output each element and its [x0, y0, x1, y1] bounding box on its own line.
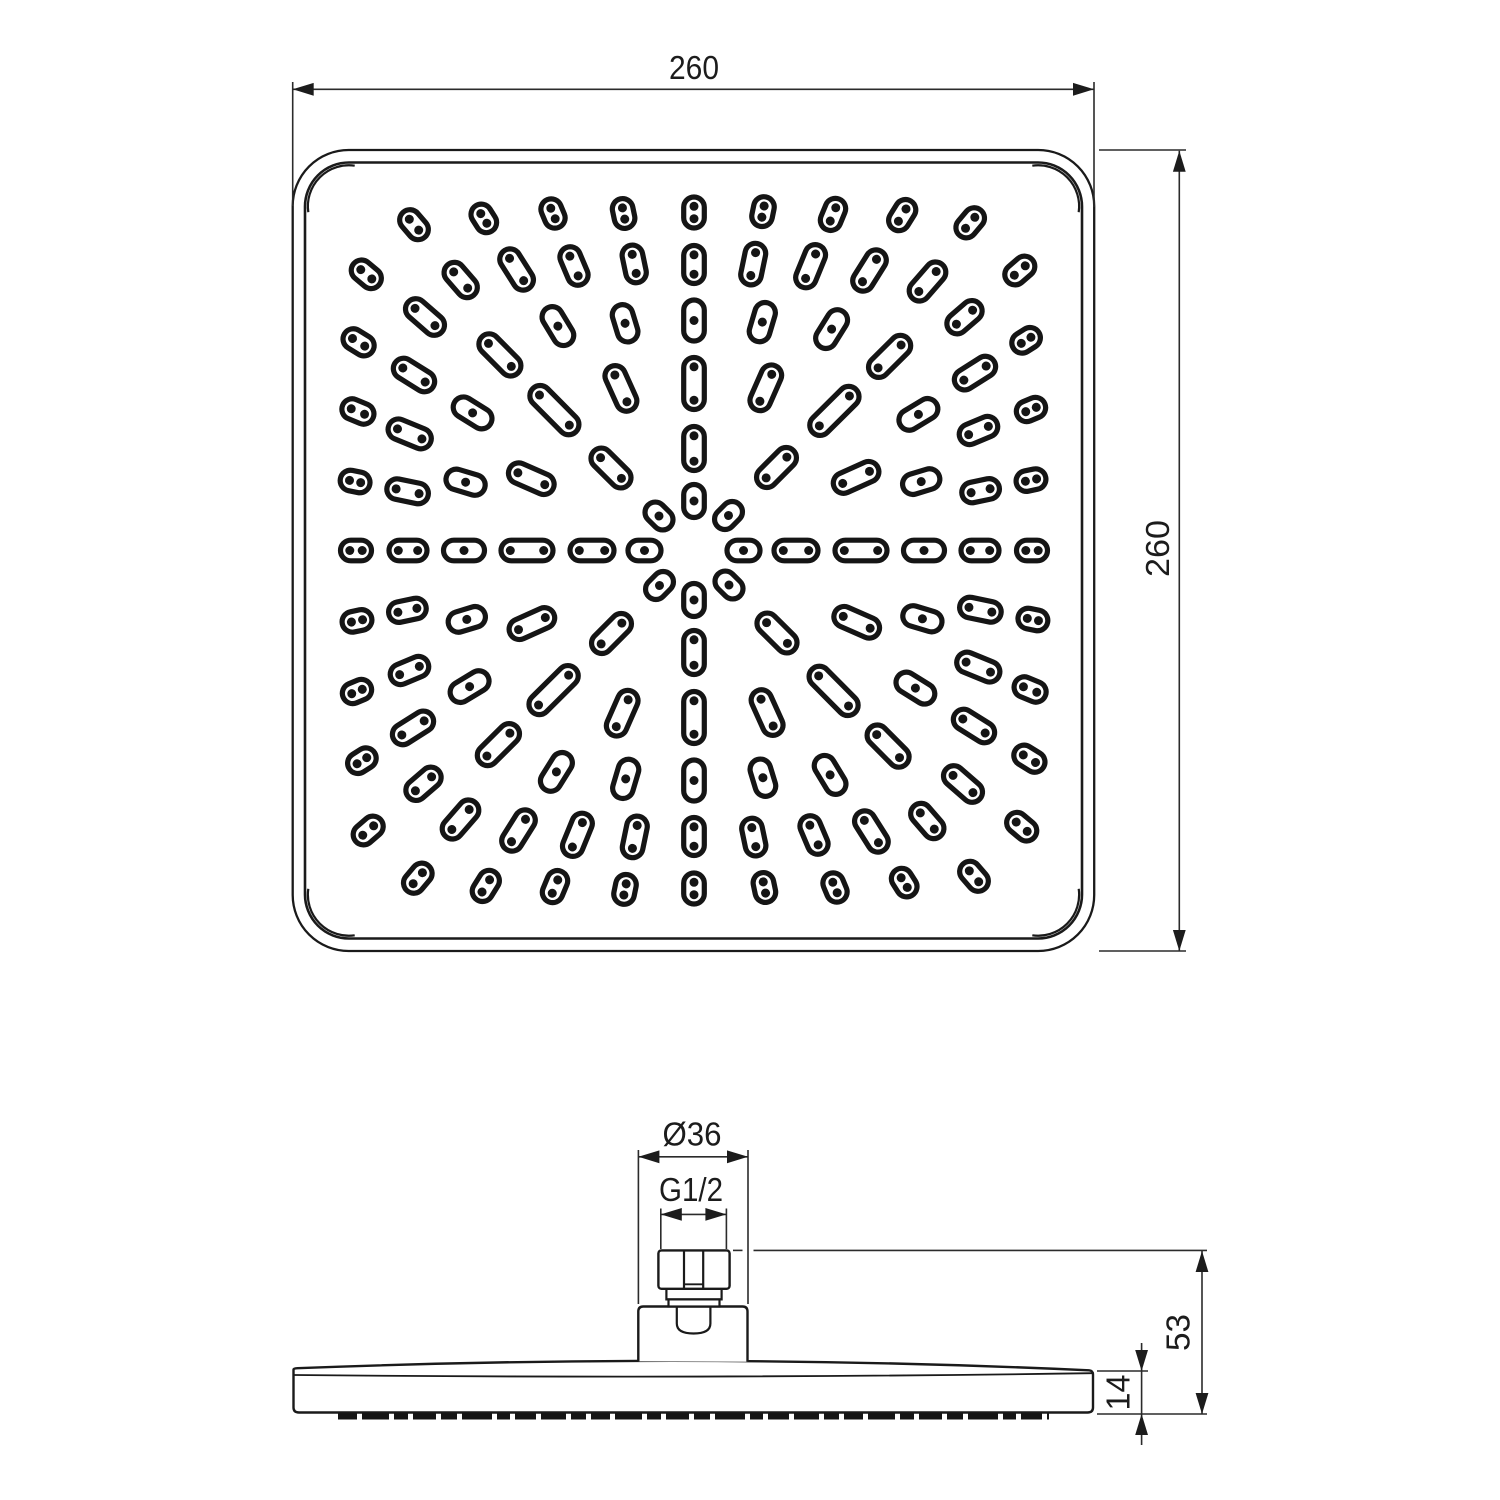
svg-text:53: 53 — [1160, 1314, 1197, 1351]
svg-text:14: 14 — [1100, 1375, 1137, 1411]
svg-text:G1/2: G1/2 — [659, 1171, 723, 1208]
svg-text:Ø36: Ø36 — [663, 1116, 722, 1153]
svg-text:260: 260 — [669, 49, 719, 86]
svg-text:260: 260 — [1139, 520, 1176, 577]
